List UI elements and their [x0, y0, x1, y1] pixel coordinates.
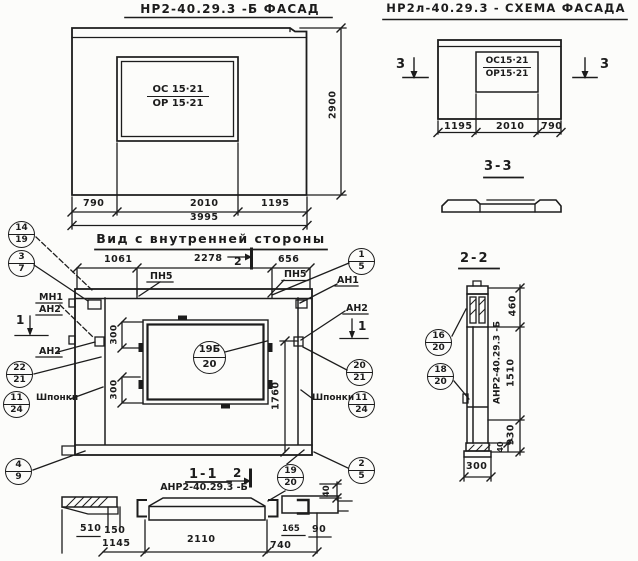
section-1-mark-right: 1: [358, 320, 366, 332]
dim-90: 90: [312, 525, 326, 535]
facade-title: НР2-40.29.3 -Б ФАСАД: [125, 3, 335, 15]
facade-window-mark-bottom: ОР 15·21: [147, 97, 209, 109]
schema-window-mark-top: ОС15·21: [483, 56, 531, 68]
section-2-mark-top: 2: [234, 256, 242, 267]
section-3-mark-left: 3: [396, 58, 405, 71]
facade-dim-total: 3995: [190, 213, 218, 223]
callout-18-20: 1820: [427, 363, 454, 390]
section-1-1-label: АНР2-40.29.3 -Б: [156, 483, 252, 493]
inner-view-lines: [15, 237, 368, 470]
inner-dim-top-middle: 2278: [194, 254, 222, 264]
schema-window-mark-bottom: ОР15·21: [483, 68, 531, 79]
dim-1510: 1510: [506, 358, 516, 388]
inner-dim-right-height: 1760: [271, 379, 281, 413]
label-mn1: МН1: [39, 293, 63, 303]
section-1-mark-left: 1: [16, 314, 24, 326]
drawing-linework: [0, 0, 638, 561]
inner-dim-offset-top: 300: [111, 323, 120, 347]
label-pn5-right: ПН5: [284, 270, 307, 280]
inner-dim-offset-bottom: 300: [111, 378, 120, 402]
dim-740: 740: [270, 541, 291, 551]
label-shponki-left: Шпонки: [36, 394, 78, 403]
facade-window-mark-top: ОС 15·21: [147, 84, 209, 97]
label-an2-stacked: АН2: [39, 305, 61, 315]
inner-dim-top-left: 1061: [104, 255, 132, 265]
section-2-2-title: 2-2: [460, 252, 490, 265]
facade-dim-height: 2900: [328, 88, 338, 122]
schema-dim-left: 1195: [444, 122, 472, 132]
schema-lines: [383, 20, 627, 213]
callout-4-9: 49: [5, 458, 32, 485]
dim-460: 460: [508, 293, 518, 319]
callout-19b-20-window: 19Б20: [193, 341, 226, 374]
drawing-sheet: НР2-40.29.3 -Б ФАСАД ОС 15·21 ОР 15·21 7…: [0, 0, 638, 561]
facade-dim-right: 1195: [261, 199, 289, 209]
callout-16-20: 1620: [425, 329, 452, 356]
label-an1: АН1: [337, 276, 359, 286]
dim-150: 150: [104, 526, 125, 536]
label-an2-left: АН2: [39, 347, 61, 357]
callout-2-5: 25: [348, 457, 375, 484]
callout-1-5: 15: [348, 248, 375, 275]
section-3-mark-right: 3: [600, 58, 609, 71]
section-3-3-title: 3-3: [484, 160, 514, 173]
section-2-mark-bottom: 2: [233, 467, 241, 479]
dim-930: 930: [506, 422, 516, 448]
section-2-2-label: АНР2-40.29.3 -Б: [494, 308, 503, 418]
section-1-1-title: 1-1: [189, 468, 219, 481]
schema-dim-middle: 2010: [496, 122, 524, 132]
dim-2110: 2110: [187, 535, 215, 545]
facade-window-mark: ОС 15·21 ОР 15·21: [147, 84, 209, 109]
callout-19-20: 1920: [277, 464, 304, 491]
callout-11-24-right: 1124: [348, 391, 375, 418]
callout-11-24-left: 1124: [3, 391, 30, 418]
schema-dim-right: 790: [541, 122, 562, 132]
label-an2-right: АН2: [346, 304, 368, 314]
inner-dim-top-right: 656: [278, 255, 299, 265]
dim-510: 510: [80, 524, 101, 534]
dim-300: 300: [466, 462, 487, 472]
callout-14-19: 1419: [8, 221, 35, 248]
dim-40-bottom: 40: [323, 481, 332, 501]
schema-title: НР2л-40.29.3 - СХЕМА ФАСАДА: [383, 3, 629, 15]
inner-view-title: Вид с внутренней стороны: [95, 233, 327, 246]
dim-165: 165: [282, 525, 300, 534]
callout-20-21: 2021: [346, 359, 373, 386]
schema-window-mark: ОС15·21 ОР15·21: [483, 56, 531, 79]
facade-dim-left: 790: [83, 199, 104, 209]
dim-40-right: 40: [497, 438, 505, 456]
callout-3-7: 37: [8, 250, 35, 277]
label-pn5-left: ПН5: [150, 272, 173, 282]
callout-22-21: 2221: [6, 361, 33, 388]
dim-1145: 1145: [102, 539, 130, 549]
facade-dim-middle: 2010: [190, 199, 218, 209]
